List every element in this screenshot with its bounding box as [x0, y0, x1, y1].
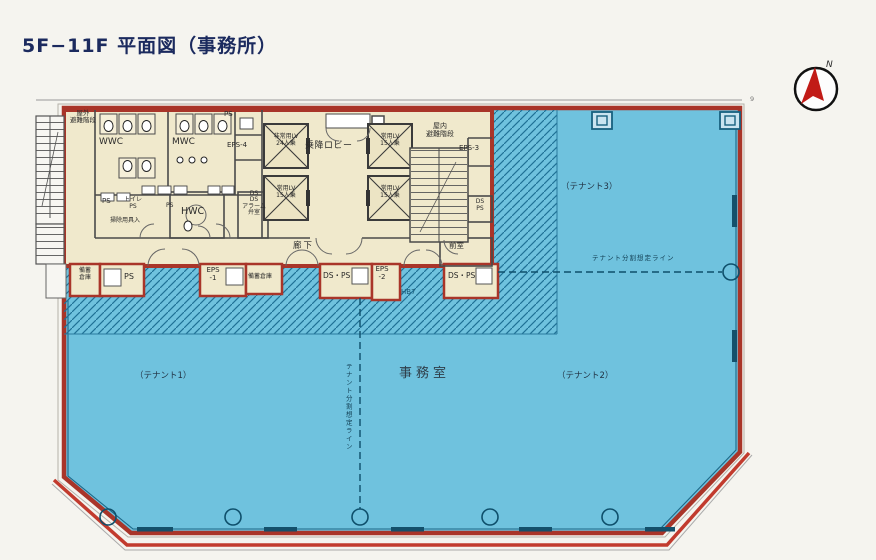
floorplan-page: 5F−11F 平面図（事務所） N 9 屋外 避難階段 WWC MWC PS E…: [0, 0, 876, 560]
strip-label-ds-ps-b: DS・PS: [448, 272, 475, 280]
split-line-h-label: テナント分割想定ライン: [592, 255, 675, 262]
hatch-note-label: HB7: [401, 289, 416, 297]
room-label-indoor-stairs: 屋内 避難階段: [412, 123, 468, 139]
compass-icon: [795, 67, 837, 110]
room-label-corridor: 廊下: [293, 242, 314, 252]
strip-label-stock-b: 備蓄倉庫: [248, 274, 272, 281]
tenant3-label: （テナント3）: [561, 183, 617, 193]
room-label-mwc: MWC: [172, 137, 195, 147]
strip-label-ps: PS: [124, 273, 134, 282]
room-label-hwc: HWC: [181, 207, 204, 218]
room-label-ps-mid: PS: [102, 198, 111, 206]
compass-north-label: N: [826, 60, 833, 70]
room-label-toilet-ps: トイレ PS: [121, 197, 145, 210]
room-label-elevator-2: 常用LV 15人乗: [264, 186, 308, 199]
strip-label-eps2: EPS -2: [371, 266, 393, 282]
room-label-anteroom: 前室: [449, 242, 464, 250]
strip-label-ds-ps-a: DS・PS: [323, 272, 350, 280]
strip-label-stock-a: 備蓄 倉庫: [71, 268, 99, 281]
strip-label-eps1: EPS -1: [203, 267, 223, 283]
tenant1-label: （テナント1）: [135, 372, 191, 382]
room-label-ds-ps-shaft: DS PS: [472, 199, 488, 212]
room-label-outdoor-stairs: 屋外 避難階段: [60, 110, 106, 125]
room-label-elevator-emergency: 非常用LV 24人乗: [264, 134, 308, 147]
page-title: 5F−11F 平面図（事務所）: [22, 36, 277, 57]
outdoor-stairs: [36, 116, 66, 298]
grid-number-label: 9: [750, 96, 754, 103]
room-label-lobby: 乗降ロビー: [305, 141, 353, 151]
room-label-ds-alarm: DS DS アラーム 弁室: [240, 191, 268, 217]
office-room-label: 事務室: [399, 367, 450, 382]
split-line-v-label: テナント分割想定ライン: [344, 363, 351, 451]
room-label-eps3: EPS-3: [459, 145, 479, 153]
room-label-elevator-1: 常用LV 15人乗: [368, 134, 412, 147]
room-label-ps-small: PS: [166, 203, 173, 210]
room-label-elevator-3: 常用LV 15人乗: [368, 186, 412, 199]
room-label-cleaning: 掃除用具入: [110, 218, 140, 225]
room-label-wwc: WWC: [99, 137, 123, 147]
indoor-stairs: [410, 148, 468, 242]
tenant2-label: （テナント2）: [557, 372, 613, 382]
room-label-eps4: EPS-4: [227, 142, 247, 150]
room-label-ps-top: PS: [224, 111, 233, 119]
